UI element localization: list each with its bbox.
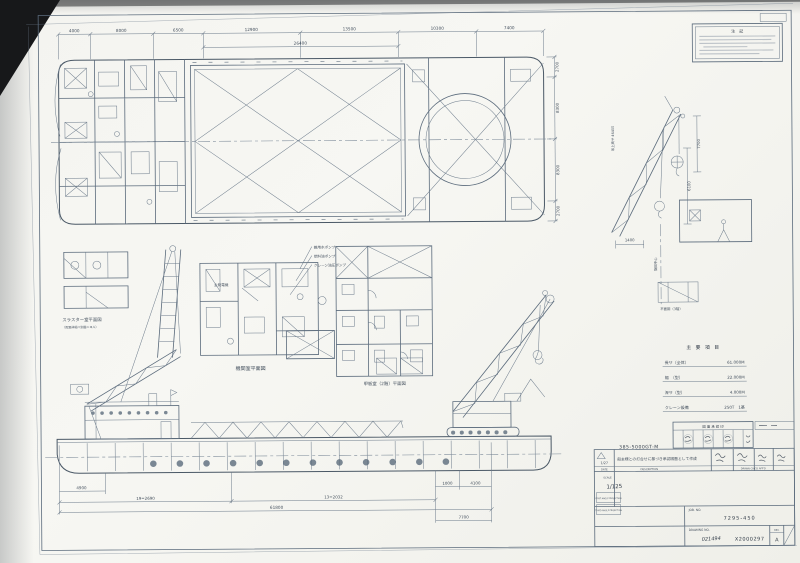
platform-label: 平面図（3階） <box>660 306 683 311</box>
dim-label: 8300 <box>555 102 560 113</box>
dim-label: 7400 <box>504 25 515 30</box>
dim-label: 4000 <box>69 28 80 33</box>
description-column-label: DESCRIPTION <box>641 467 659 471</box>
spec-row-value: 61.000M <box>727 360 745 365</box>
scale-value: 1/125 <box>606 484 623 491</box>
platform-sketch: 平面図（3階） <box>658 282 698 311</box>
dim-label: 6100 <box>686 181 691 191</box>
thruster-room-detail: スラスター室平面図 （配置詳細ハ別図ニヨル） <box>62 252 129 329</box>
note-line <box>703 46 747 47</box>
approval-columns-label: DRAWN CHK'D APP'D <box>741 467 766 470</box>
first-angle-projection-label: FIRST ANGLE PROJECTION <box>596 497 623 500</box>
dim-label: 13500 <box>343 26 357 31</box>
job-no-label: JOB. NO. <box>688 508 702 512</box>
dim-label: 8000 <box>116 28 127 33</box>
note-line <box>699 35 775 37</box>
stamp-table-header: 図 面 承 認 印 <box>702 424 724 429</box>
drawing-number-cell: DRAWING NO. 021494 X2000297 REV. A <box>689 525 795 546</box>
dim-label: 7700 <box>696 138 701 148</box>
side-elevation: 4900 1000 4100 19=2690 13=2032 61800 770… <box>44 243 562 526</box>
dim-label: 61800 <box>270 505 284 510</box>
deck-truss <box>191 421 403 438</box>
swing-center-label: 旋回中心 <box>653 257 658 271</box>
crane-boom-detail: 7700 6100 1400 吊上高サ 46400 旋回中心 平面図（3階） <box>610 96 752 312</box>
title-block: 図 面 承 認 印 385-5000GT-M 1/27 船主様との打合せに基づき… <box>594 421 795 546</box>
spec-row-value: 22.000M <box>727 375 745 380</box>
blueprint-drawing: 4000 8000 6500 12900 13500 10300 7400 26… <box>0 0 800 563</box>
notes-title: 注 記 <box>731 28 743 34</box>
note-line <box>699 42 775 44</box>
spec-row-value: 250T 1基 <box>724 404 745 410</box>
annotation-main-engine: 主発電機 <box>214 282 229 287</box>
drawing-frame <box>38 10 795 550</box>
waterline <box>45 454 561 458</box>
scanned-paper: 4000 8000 6500 12900 13500 10300 7400 26… <box>0 0 800 563</box>
job-number-cell: JOB. NO. 7295-450 <box>688 508 756 522</box>
annotation-pump1: 雑用水ポンプ <box>314 244 336 249</box>
frame-corner-box <box>760 13 786 21</box>
annotation-pump2: 燃料油ポンプ <box>314 253 336 258</box>
deckhouse-plan: 甲板室（2階）平面図 <box>286 246 433 388</box>
dim-label: 1000 <box>442 481 453 486</box>
plan-dimensions-right: 2700 8300 8300 2700 <box>546 55 560 223</box>
spec-row-value: 4.000M <box>730 390 745 395</box>
thruster-detail-label: スラスター室平面図 <box>62 316 102 323</box>
deckhouse-label: 甲板室（2階）平面図 <box>364 380 407 387</box>
dim-label: 2700 <box>554 61 559 72</box>
drawing-no-handwritten: 021494 <box>702 536 721 543</box>
dim-label: 1400 <box>625 237 635 242</box>
elevation-crane <box>446 290 555 436</box>
dim-label: 19=2690 <box>136 496 155 501</box>
engine-room-label: 機関室平面図 <box>236 365 266 372</box>
drawing-no-label: DRAWING NO. <box>689 528 710 532</box>
approval-stamp-table: 図 面 承 認 印 <box>673 421 794 448</box>
notes-box: 注 記 <box>692 23 782 62</box>
plan-dimensions-top: 4000 8000 6500 12900 13500 10300 7400 26… <box>56 25 545 59</box>
revision-row: 1/27 船主様との打合せに基づき承認図面として作成 DATE DESCRIPT… <box>597 451 785 471</box>
pontoon-rollers <box>153 462 469 464</box>
spec-table-title: 主 要 項 目 <box>686 344 720 351</box>
spec-row-label: 幅 （型） <box>665 374 683 380</box>
dim-label: 2700 <box>555 205 560 216</box>
rev-label: REV. <box>774 529 780 532</box>
spec-row-label: クレーン設備 <box>665 404 689 410</box>
annotation-pump3: クレーン油圧ポンプ <box>314 262 346 267</box>
dim-label: 12900 <box>245 27 259 32</box>
paper-edge-lines <box>26 3 797 554</box>
job-no-value: 7295-450 <box>724 516 756 522</box>
third-angle-projection-label: THIRD ANGLE PROJECTION <box>595 509 622 512</box>
thruster-detail-note: （配置詳細ハ別図ニヨル） <box>62 324 98 329</box>
dim-label: 26400 <box>294 41 308 46</box>
revision-description: 船主様との打合せに基づき承認図面として作成 <box>617 456 697 462</box>
plan-equipment <box>64 66 177 205</box>
stowed-boom <box>70 246 182 440</box>
hoist-height-label: 吊上高サ 46400 <box>610 126 615 151</box>
drawing-no-value: X2000297 <box>735 536 765 542</box>
scale-label: SCALE <box>603 476 612 480</box>
note-line <box>699 49 773 51</box>
dim-label: 4100 <box>470 480 481 485</box>
dim-label: 10300 <box>431 26 445 31</box>
scale-area: SCALE 1/125 FIRST ANGLE PROJECTION THIRD… <box>595 475 623 514</box>
date-column-label: DATE <box>601 467 608 471</box>
dim-label: 7700 <box>459 515 470 520</box>
spec-row-label: 深サ（型） <box>665 389 685 395</box>
spec-table: 主 要 項 目 長サ（全体） 61.000M 幅 （型） 22.000M 深サ（… <box>662 344 746 412</box>
lifted-module-box <box>679 200 751 243</box>
dim-label: 8300 <box>555 164 560 175</box>
rev-value: A <box>775 537 779 543</box>
dim-label: 6500 <box>173 28 184 33</box>
dim-label: 13=2032 <box>324 494 343 499</box>
note-line <box>699 39 771 41</box>
revision-date: 1/27 <box>600 461 608 465</box>
plan-view: 4000 8000 6500 12900 13500 10300 7400 26… <box>50 25 560 227</box>
spec-row-label: 長サ（全体） <box>665 359 689 365</box>
note-line <box>699 53 759 55</box>
rev-slash <box>784 525 795 545</box>
dim-label: 4900 <box>76 485 87 490</box>
